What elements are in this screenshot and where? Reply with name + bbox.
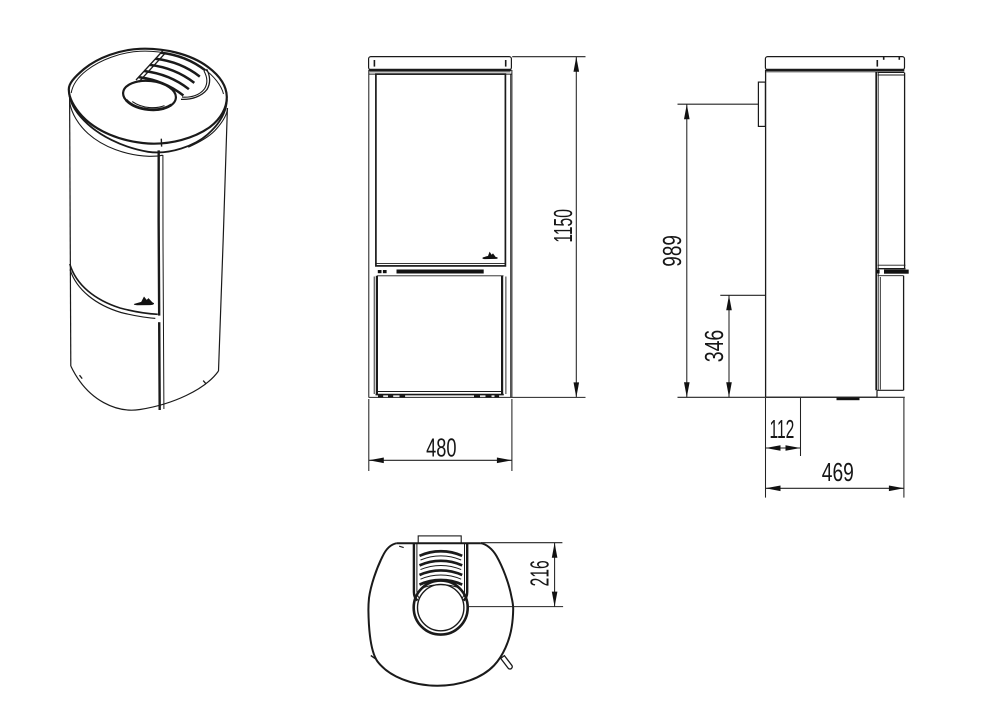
svg-text:480: 480 <box>426 433 456 462</box>
svg-text:1150: 1150 <box>549 209 578 243</box>
svg-text:989: 989 <box>657 235 687 267</box>
svg-text:216: 216 <box>526 560 555 586</box>
svg-text:469: 469 <box>822 457 854 487</box>
svg-text:112: 112 <box>769 415 794 444</box>
svg-text:346: 346 <box>699 330 728 363</box>
